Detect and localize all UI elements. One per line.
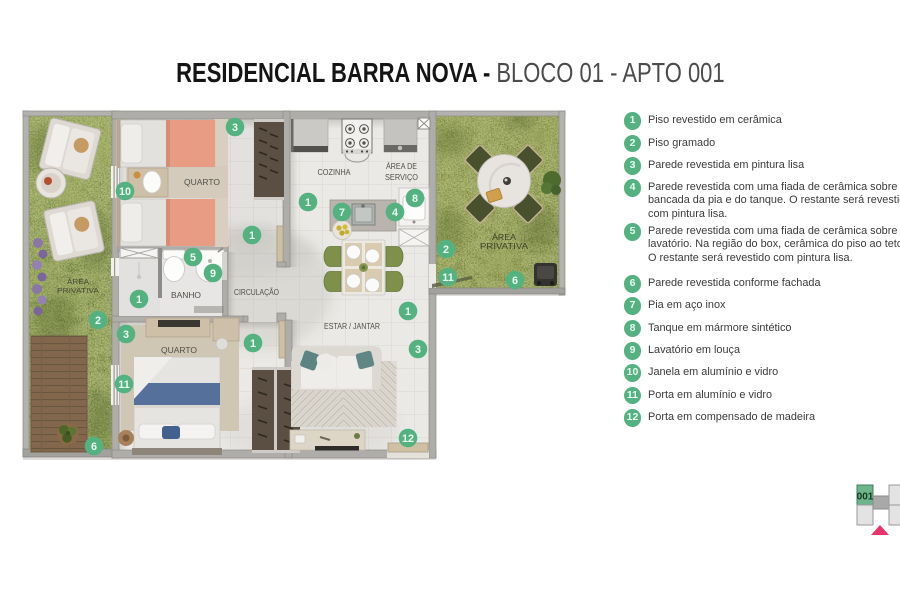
svg-text:ÁREA: ÁREA	[492, 233, 517, 242]
svg-text:CIRCULAÇÃO: CIRCULAÇÃO	[234, 287, 279, 297]
svg-text:4: 4	[392, 207, 398, 219]
svg-text:5: 5	[190, 252, 196, 264]
svg-text:001: 001	[857, 492, 874, 503]
svg-text:6: 6	[91, 441, 97, 453]
svg-text:3: 3	[232, 122, 238, 134]
svg-text:ÁREA DE: ÁREA DE	[386, 161, 417, 171]
svg-text:1: 1	[136, 294, 142, 306]
svg-text:12: 12	[402, 433, 414, 445]
svg-text:QUARTO: QUARTO	[161, 345, 197, 355]
svg-text:ESTAR / JANTAR: ESTAR / JANTAR	[324, 321, 380, 331]
svg-text:10: 10	[119, 186, 131, 198]
svg-text:QUARTO: QUARTO	[184, 177, 220, 187]
svg-text:11: 11	[442, 272, 453, 284]
svg-text:6: 6	[512, 275, 518, 287]
svg-text:2: 2	[95, 315, 101, 327]
svg-text:11: 11	[118, 379, 129, 391]
svg-text:PRIVATIVA: PRIVATIVA	[480, 242, 529, 251]
svg-text:3: 3	[123, 329, 129, 341]
svg-text:BANHO: BANHO	[171, 290, 201, 300]
svg-text:COZINHA: COZINHA	[318, 167, 351, 177]
svg-text:1: 1	[249, 230, 255, 242]
svg-text:7: 7	[339, 207, 345, 219]
svg-text:3: 3	[415, 344, 421, 356]
svg-text:1: 1	[405, 306, 411, 318]
svg-text:1: 1	[250, 338, 256, 350]
svg-text:PRIVATIVA: PRIVATIVA	[57, 286, 100, 295]
svg-text:1: 1	[305, 197, 311, 209]
svg-text:9: 9	[210, 268, 216, 280]
svg-text:8: 8	[412, 193, 418, 205]
svg-text:SERVIÇO: SERVIÇO	[385, 172, 418, 182]
svg-text:2: 2	[443, 244, 449, 256]
svg-text:ÁREA: ÁREA	[67, 277, 90, 286]
